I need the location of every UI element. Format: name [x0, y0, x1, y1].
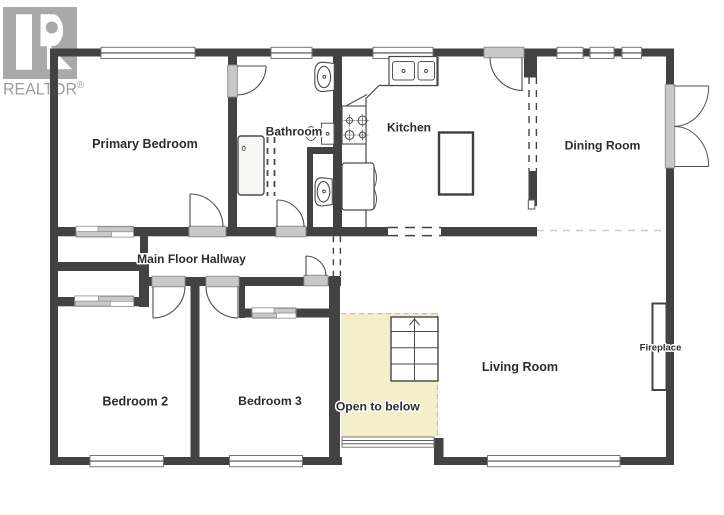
svg-text:Kitchen: Kitchen	[387, 120, 431, 134]
svg-text:Bedroom 3: Bedroom 3	[238, 394, 302, 408]
svg-text:Bedroom 2: Bedroom 2	[102, 394, 168, 408]
svg-text:Living Room: Living Room	[482, 360, 558, 374]
svg-text:Dining Room: Dining Room	[565, 138, 641, 152]
svg-text:Fireplace: Fireplace	[640, 343, 682, 354]
svg-text:Main Floor Hallway: Main Floor Hallway	[137, 252, 246, 266]
svg-text:®: ®	[77, 80, 85, 91]
svg-text:Primary Bedroom: Primary Bedroom	[92, 137, 198, 151]
svg-text:Bathroom: Bathroom	[266, 125, 323, 139]
svg-text:REALTOR: REALTOR	[3, 81, 77, 99]
svg-text:Open to below: Open to below	[336, 399, 420, 413]
